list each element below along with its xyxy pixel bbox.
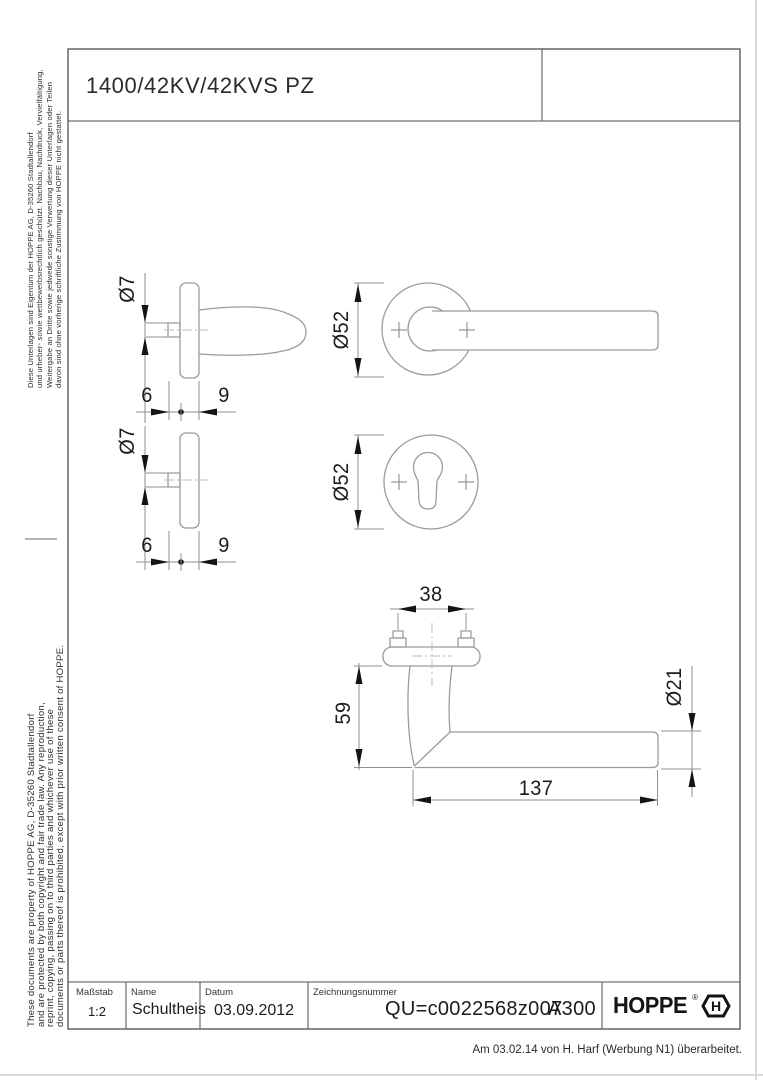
dim-label-rose-diameter-key: Ø52	[330, 463, 354, 502]
dim-label-handle-projection: 59	[332, 702, 356, 725]
legal-de-line: davon sind ohne vorherige schriftliche Z…	[54, 43, 63, 388]
legal-de-line: und urheber- sowie wettbewerbsrechtlich …	[35, 43, 44, 388]
legal-de-line: Weitergabe an Dritte sowie jedwede sonst…	[45, 43, 54, 388]
drawing-number-label: Zeichnungsnummer	[313, 987, 397, 998]
legal-notice-german: Diese Unterlagen sind Eigentum der HOPPE…	[26, 43, 63, 388]
front-view-key-rose	[354, 435, 478, 529]
hoppe-hexagon-icon: H	[701, 993, 731, 1019]
page-title: 1400/42KV/42KVS PZ	[86, 73, 315, 99]
drawing-canvas	[0, 0, 763, 1080]
revision-value: A300	[548, 998, 596, 1021]
front-view-handle	[354, 283, 658, 377]
name-label: Name	[131, 987, 156, 998]
registered-trademark-icon: ®	[692, 993, 698, 1002]
hoppe-logo-text: HOPPE	[613, 992, 687, 1019]
hexagon-letter: H	[711, 998, 721, 1014]
dim-label-backset-9-bottom: 9	[218, 534, 229, 558]
dim-label-backset-9-top: 9	[218, 384, 229, 408]
dim-label-backset-6-bottom: 6	[141, 534, 152, 558]
dim-label-spindle-diameter-top: Ø7	[116, 275, 140, 302]
dim-label-grip-diameter: Ø21	[663, 668, 687, 707]
scale-label: Maßstab	[76, 987, 113, 998]
drawing-number-value: QU=c0022568z007	[385, 998, 562, 1021]
legal-de-line: Diese Unterlagen sind Eigentum der HOPPE…	[26, 43, 35, 388]
dim-label-screw-spacing: 38	[420, 583, 443, 607]
top-view-handle	[354, 606, 701, 807]
date-label: Datum	[205, 987, 233, 998]
scale-value: 1:2	[68, 1004, 126, 1019]
legal-notice-english: These documents are property of HOPPE AG…	[27, 555, 65, 1027]
revision-note: Am 03.02.14 von H. Harf (Werbung N1) übe…	[472, 1044, 742, 1056]
page-edge-lines	[0, 0, 763, 1080]
date-value: 03.09.2012	[214, 1002, 294, 1020]
legal-en-line: documents or parts thereof is prohibited…	[56, 555, 66, 1027]
hoppe-logo: HOPPE® H	[602, 982, 740, 1029]
pz-keyhole	[414, 453, 443, 509]
dim-label-rose-diameter-handle: Ø52	[330, 311, 354, 350]
dim-label-handle-length: 137	[519, 777, 553, 801]
drawing-sheet: 1400/42KV/42KVS PZ Diese Unterlagen sind…	[0, 0, 763, 1080]
name-value: Schultheis	[132, 1001, 206, 1019]
dim-label-spindle-diameter-bottom: Ø7	[116, 427, 140, 454]
dim-label-backset-6-top: 6	[141, 384, 152, 408]
